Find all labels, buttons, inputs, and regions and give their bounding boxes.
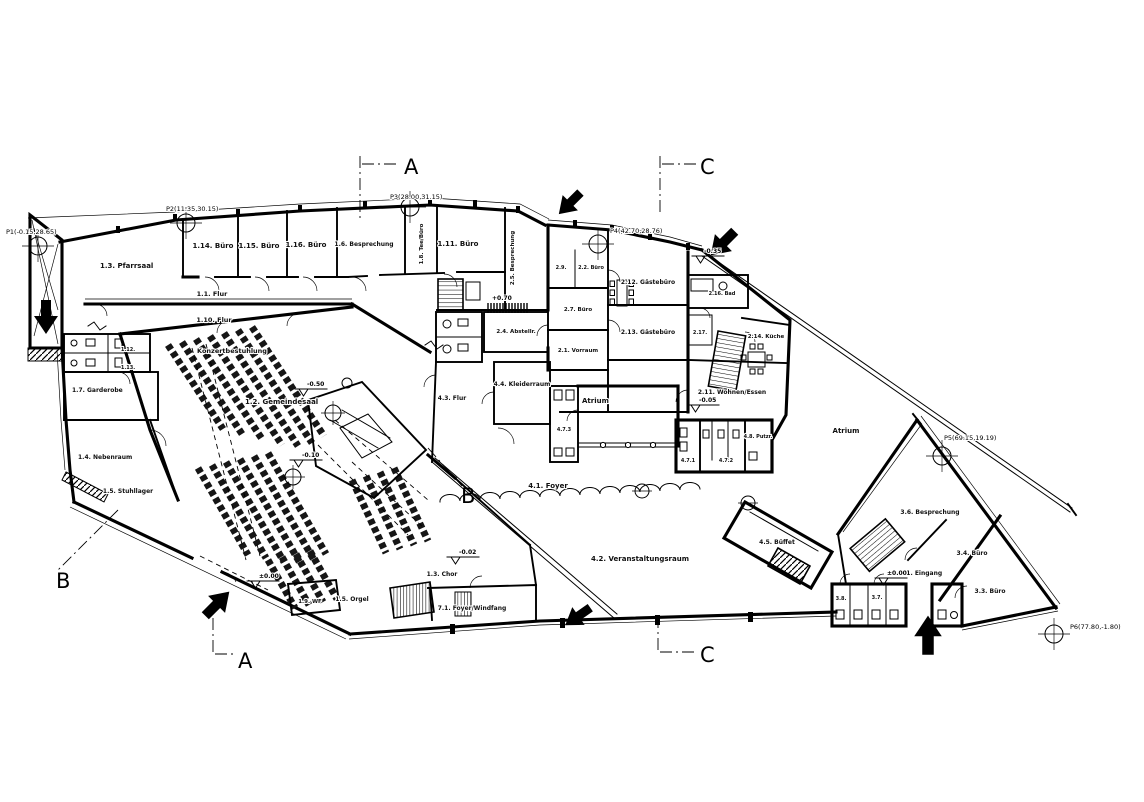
survey-point-label: P6(77.80,-1.80) — [1070, 623, 1121, 631]
room-label: 3.7. — [872, 595, 883, 601]
room-label: 2.5. Besprechung — [510, 231, 516, 285]
elevation-label: ±0.00 — [887, 570, 907, 577]
room-label: Atrium — [833, 427, 860, 435]
section-b-mid: B — [461, 484, 475, 508]
construction-point-circles — [281, 378, 352, 489]
pergola-wall — [702, 252, 1076, 515]
hall-seat-rows — [168, 327, 428, 608]
north-wing-walls — [28, 198, 549, 352]
room-label: 1.2. Gemeindesaal — [245, 398, 318, 406]
room-label: 2.12. Gästebüro — [621, 279, 675, 286]
section-a-bottom: A — [238, 649, 253, 673]
room-label: 4.1. Foyer — [528, 482, 568, 490]
room-label: 1.4. Nebenraum — [78, 454, 132, 461]
room-label: 1.5. Stuhllager — [103, 488, 153, 495]
section-lines — [58, 156, 696, 654]
left-rooms-walls — [64, 334, 178, 500]
room-label: 1.1. Flur — [197, 290, 229, 298]
entrance-arrow-southwest — [197, 583, 238, 624]
elevation-label: ±0.00 — [259, 573, 279, 580]
section-c-bottom: C — [700, 643, 715, 667]
room-label: 1.3. Chor — [427, 571, 458, 578]
entrance-arrow-east — [914, 616, 942, 655]
room-label: 4.7.3 — [557, 427, 572, 433]
direction-arrow-northeast — [702, 223, 743, 264]
survey-point-label: P1(-0.15,28.65) — [6, 228, 57, 236]
survey-point-label: P4(42.70,28.76) — [610, 227, 662, 235]
direction-arrow-top — [551, 185, 588, 222]
right-wing-walls — [832, 414, 1060, 630]
room-label: 2.13. Gästebüro — [621, 329, 675, 336]
atrium-walls — [578, 386, 678, 448]
room-label: 2.1. Vorraum — [558, 348, 599, 354]
section-a-top: A — [404, 155, 419, 179]
elevation-label: -0.10 — [302, 452, 319, 459]
room-label: 2.11. Wohnen/Essen — [698, 389, 766, 396]
room-label: Atrium — [582, 397, 609, 405]
annotation-label: Konzertbestuhlung — [197, 347, 267, 355]
room-label: 1.6. Besprechung — [334, 241, 393, 248]
room-label: 4.4. Kleiderraum — [494, 381, 551, 388]
guest-block-walls — [548, 220, 702, 412]
entrance-arrow-south — [559, 599, 596, 634]
floor-plan-canvas: A C A C B B P1(-0.15,28.65) P2(11.35,30.… — [0, 0, 1144, 802]
section-c-top: C — [700, 155, 715, 179]
elevation-label: -0.50 — [307, 381, 324, 388]
room-label: 4.3. Flur — [438, 395, 466, 402]
room-label: 3.8. — [836, 596, 847, 602]
west-tower — [28, 215, 62, 361]
room-label: 4.7.1 — [681, 458, 696, 464]
room-label: 1.12. — [121, 347, 135, 353]
room-label: 1.15. Büro — [239, 242, 280, 250]
room-label: 2.17. — [693, 330, 707, 336]
room-label: 4.2. Veranstaltungsraum — [591, 555, 689, 563]
room-label: 1.10. Flur — [196, 316, 232, 324]
room-label: 2.2. Büro — [578, 265, 604, 271]
survey-point-label: P3(28.00,31.15) — [390, 193, 442, 201]
room-label: 3.4. Büro — [957, 550, 988, 557]
room-label: 4.7.2 — [719, 458, 734, 464]
entrance-arrow-west — [34, 300, 58, 334]
elevation-label: -0.05 — [699, 397, 716, 404]
room-label: 3.3. Büro — [975, 588, 1006, 595]
east-annex-walls — [688, 250, 790, 472]
room-label: 2.14. Küche — [748, 334, 785, 340]
room-label: 1.9. WF — [298, 599, 322, 605]
room-label: 7.1. Foyer/Windfang — [438, 605, 507, 612]
room-label: 4.5. Büffet — [759, 539, 795, 546]
room-label: 1.11. Büro — [438, 240, 479, 248]
elevation-label: +0.70 — [492, 295, 512, 302]
room-label: 1.7. Garderobe — [72, 387, 123, 394]
room-label: 2.7. Büro — [564, 307, 593, 313]
room-label: 1.3. Pfarrsaal — [100, 262, 153, 270]
survey-point-markers — [22, 191, 1070, 650]
room-label: 1.13. — [121, 365, 135, 371]
elevation-label: -0.02 — [459, 549, 476, 556]
room-label: 4.8. Putzr. — [744, 434, 773, 440]
wc-block-walls — [676, 420, 772, 472]
survey-point-label: P2(11.35,30.15) — [166, 205, 218, 213]
room-label: 1.16. Büro — [286, 241, 327, 249]
room-label: 3.6. Besprechung — [900, 509, 959, 516]
south-walls — [349, 612, 836, 639]
room-label: 2.16. Bad — [709, 291, 736, 297]
room-label: 1.5. Orgel — [335, 596, 368, 603]
room-label: 2.4. Abstellr. — [496, 329, 535, 335]
elevation-labels: -0.50 -0.10 ±0.00 -0.02 -0.05 ±0.00 -0.3… — [259, 248, 907, 580]
elevation-label: -0.35 — [704, 248, 721, 255]
room-label: 2.9. — [556, 265, 567, 271]
section-b-left: B — [56, 569, 70, 593]
room-label: 1.8. Tee/Büro — [419, 223, 425, 264]
room-label: 1.14. Büro — [193, 242, 234, 250]
survey-point-label: P5(69.15,19.19) — [944, 434, 996, 442]
event-hall-partitions — [432, 458, 758, 618]
